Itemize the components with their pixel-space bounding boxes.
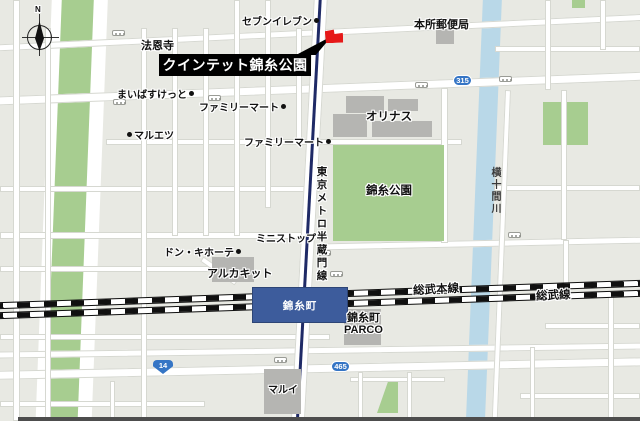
road-vertical <box>530 347 535 421</box>
crosswalk-icon <box>499 76 512 82</box>
poi-text: 本所郵便局 <box>414 16 469 32</box>
poi-text: 錦糸町 <box>347 312 380 324</box>
poi-text: ドン・キホーテ <box>164 244 234 259</box>
poi-label-parco: 錦糸町 PARCO <box>344 312 383 336</box>
poi-dot <box>326 139 331 144</box>
road-horizontal <box>520 393 640 399</box>
poi-text: ファミリーマート <box>199 99 279 114</box>
railway-label-hanzomon: 東京メトロ半蔵門線 <box>316 166 327 283</box>
road-horizontal <box>350 377 445 382</box>
poi-label-arcakit: アルカキット <box>207 265 273 281</box>
road-vertical <box>296 28 302 143</box>
road-vertical <box>13 0 20 421</box>
callout-box[interactable]: クインテット錦糸公園 <box>159 54 311 76</box>
railway-text: 総武線 <box>536 286 571 304</box>
poi-dot <box>281 104 286 109</box>
road-vertical <box>561 90 567 240</box>
compass: N <box>0 0 70 60</box>
crosswalk-icon <box>330 271 343 277</box>
green-patch-south <box>377 380 398 413</box>
road-vertical <box>545 0 551 90</box>
road-vertical <box>358 372 363 421</box>
road-vertical <box>600 0 606 50</box>
poi-text: マルエツ <box>134 127 174 142</box>
road-horizontal <box>0 342 640 358</box>
road-horizontal <box>495 46 640 52</box>
road-horizontal <box>494 185 640 191</box>
poi-dot <box>127 132 132 137</box>
poi-label-maruetsu: マルエツ <box>127 127 174 142</box>
route-badge-465: 465 <box>331 361 350 372</box>
poi-label-familymart-east: ファミリーマート <box>244 134 331 149</box>
crosswalk-icon <box>112 30 125 36</box>
map-canvas[interactable]: 錦糸町 315 14 465 セブンイレブン 本所郵便局 法恩寺 まいばすけっと… <box>0 0 640 421</box>
crosswalk-icon <box>415 82 428 88</box>
poi-text: マルイ <box>268 381 298 396</box>
railway-label-sobu-main: 総武本線 <box>413 280 460 298</box>
poi-label-olinas: オリナス <box>366 108 412 124</box>
road-route14 <box>0 357 640 380</box>
callout-label: クインテット錦糸公園 <box>163 55 308 75</box>
poi-dot <box>314 18 319 23</box>
railway-text: 東京メトロ半蔵門線 <box>316 166 327 283</box>
poi-label-honjo-post-office: 本所郵便局 <box>414 16 469 32</box>
poi-dot <box>189 91 194 96</box>
poi-text: まいばすけっと <box>117 86 187 101</box>
poi-text: セブンイレブン <box>242 13 312 28</box>
compass-north-label: N <box>35 5 41 14</box>
building <box>333 114 367 137</box>
railway-text: 総武本線 <box>413 280 460 298</box>
road-horizontal <box>545 323 640 329</box>
river-label: 横十間川 <box>489 167 499 215</box>
road-vertical <box>110 381 115 421</box>
river-text: 横十間川 <box>489 167 499 215</box>
crosswalk-icon <box>508 232 521 238</box>
poi-label-houonji: 法恩寺 <box>141 37 174 53</box>
poi-label-seven-eleven: セブンイレブン <box>242 13 319 28</box>
compass-north-text: N <box>35 5 41 14</box>
railway-label-sobu: 総武線 <box>536 286 571 304</box>
poi-text: ファミリーマート <box>244 134 324 149</box>
road-horizontal <box>0 401 205 407</box>
road-vertical <box>407 372 412 421</box>
poi-text: 錦糸公園 <box>366 182 412 198</box>
poi-text: 法恩寺 <box>141 37 174 53</box>
poi-label-maibasuketto: まいばすけっと <box>117 86 194 101</box>
poi-label-ministop: ミニストップ <box>256 230 323 245</box>
poi-label-don-quijote: ドン・キホーテ <box>164 244 241 259</box>
poi-label-marui: マルイ <box>268 381 298 396</box>
route-badge-315: 315 <box>453 75 472 86</box>
poi-label-familymart-north: ファミリーマート <box>199 99 286 114</box>
poi-text: アルカキット <box>207 265 273 281</box>
station-box: 錦糸町 <box>252 287 348 323</box>
green-patch-top <box>572 0 585 8</box>
crosswalk-icon <box>274 357 287 363</box>
poi-dot <box>236 249 241 254</box>
road-vertical <box>234 0 240 236</box>
station-name: 錦糸町 <box>283 298 318 313</box>
poi-text: ミニストップ <box>256 230 316 245</box>
elevated-road <box>18 417 640 421</box>
poi-label-kinshi-park: 錦糸公園 <box>366 182 412 198</box>
poi-text: オリナス <box>366 108 412 124</box>
poi-text: PARCO <box>344 324 383 336</box>
road-vertical <box>608 295 614 421</box>
road-vertical <box>45 28 51 421</box>
